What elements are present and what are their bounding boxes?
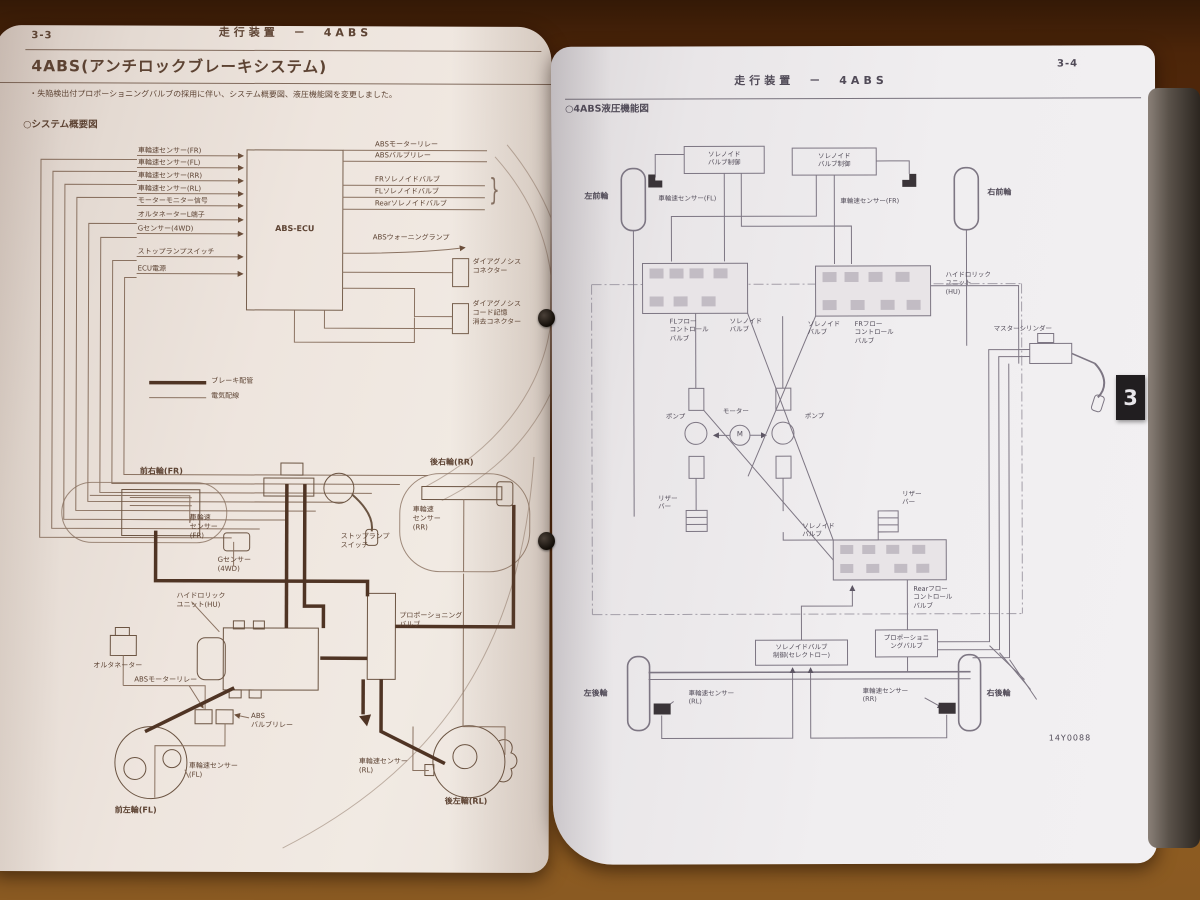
input-g-sensor: Gセンサー(4WD): [138, 225, 194, 234]
input-stop-lamp: ストップランプスイッチ: [138, 248, 215, 257]
pump-right-label: ポンプ: [805, 412, 824, 420]
sol-valve-rear-label: ソレノイド バルブ: [802, 522, 835, 539]
rr-wheel-label: 後右輪(RR): [430, 458, 474, 469]
sol-valve-right-label: ソレノイド バルブ: [808, 320, 841, 337]
input-motor-monitor: モーターモニター信号: [138, 197, 208, 206]
diag-connector-label: ダイアグノシス コネクター: [473, 258, 522, 276]
g-sensor-label: Gセンサー (4WD): [218, 556, 252, 574]
fr-flow-valve-label: FRフロー コントロール バルブ: [855, 320, 894, 345]
fr-wheel-label: 前右輪(FR): [140, 467, 183, 478]
rr-rear-wheel-label: 右後輪: [987, 689, 1011, 699]
diag-erase-connector-label: ダイアグノシス コード記憶 消去コネクター: [472, 300, 521, 327]
input-sensor-fl: 車輪速センサー(FL): [138, 159, 200, 168]
output-motor-relay: ABSモーターリレー: [375, 140, 438, 149]
pump-left-label: ポンプ: [666, 412, 685, 420]
motor-m-symbol: M: [733, 430, 747, 439]
prop-valve-label: プロポーショニング バルブ: [399, 611, 462, 629]
rl-wheel-label: 後左輪(RL): [445, 797, 488, 808]
input-ecu-power: ECU電源: [138, 265, 166, 274]
output-valve-relay: ABSバルブリレー: [375, 151, 431, 160]
hyd-sensor-rr-label: 車輪速センサー (RR): [863, 687, 909, 704]
rf-wheel-label: 右前輪: [987, 188, 1011, 198]
sol-ctrl-right-label: ソレノイド バルブ制御: [792, 152, 876, 169]
right-page: 3-4 走行装置 － 4ABS ○4ABS液圧機能図: [551, 45, 1157, 865]
hyd-sensor-rl-label: 車輪速センサー (RL): [689, 689, 735, 706]
rear-flow-valve-label: Rearフロー コントロール バルブ: [913, 585, 952, 610]
input-alternator-l: オルタネーターL端子: [138, 211, 205, 220]
sol-ctrl-rear-label: ソレノイドバルブ 制御(セレクトロー): [755, 643, 847, 660]
solenoid-group-brace: }: [489, 171, 500, 210]
motor-label: モーター: [723, 407, 749, 416]
legend-electric-label: 電気配線: [211, 392, 239, 401]
ecu-box-label: ABS-ECU: [247, 224, 343, 235]
hyd-sensor-fr-label: 車輪速センサー(FR): [840, 197, 899, 206]
reservoir-right-label: リザー バー: [902, 490, 922, 507]
sensor-fl-label: 車輪速センサー (FL): [189, 762, 238, 780]
system-diagram: [0, 25, 551, 873]
stop-lamp-label: ストップランプ スイッチ: [341, 532, 390, 550]
photo-open-manual: 3-3 走行装置 － 4ABS 4ABS(アンチロックブレーキシステム) ・失陥…: [0, 0, 1200, 900]
sensor-rr-label: 車輪速 センサー (RR): [413, 505, 441, 532]
input-sensor-fr: 車輪速センサー(FR): [138, 147, 201, 156]
output-rear-solenoid: Rearソレノイドバルブ: [375, 199, 447, 208]
hyd-hu-label: ハイドロリック ユニット (HU): [946, 271, 991, 296]
page-stack-edge: [1148, 88, 1200, 848]
lr-wheel-label: 左後輪: [584, 689, 608, 699]
sol-valve-left-label: ソレノイド バルブ: [730, 317, 763, 334]
master-cylinder-label: マスターシリンダー: [994, 324, 1052, 333]
chapter-tab-3: 3: [1116, 375, 1145, 420]
abs-valve-relay-label: ABS バルブリレー: [251, 712, 293, 730]
input-sensor-rl: 車輪速センサー(RL): [138, 185, 201, 194]
hydraulic-unit-label: ハイドロリック ユニット(HU): [176, 592, 225, 610]
figure-number: 14Y0088: [1049, 733, 1091, 744]
left-page: 3-3 走行装置 － 4ABS 4ABS(アンチロックブレーキシステム) ・失陥…: [0, 25, 551, 873]
fl-wheel-label: 前左輪(FL): [115, 805, 157, 816]
sol-ctrl-left-label: ソレノイド バルブ制御: [684, 150, 764, 167]
legend-brake-label: ブレーキ配管: [211, 377, 253, 386]
reservoir-left-label: リザー バー: [658, 494, 678, 511]
binder-hole-top: [538, 309, 555, 327]
input-sensor-rr: 車輪速センサー(RR): [138, 172, 202, 181]
binder-hole-bottom: [538, 532, 555, 550]
hyd-sensor-fl-label: 車輪速センサー(FL): [658, 194, 716, 203]
output-fr-solenoid: FRソレノイドバルブ: [375, 175, 440, 184]
fl-flow-valve-label: FLフロー コントロール バルブ: [670, 317, 709, 342]
abs-motor-relay-label: ABSモーターリレー: [134, 676, 197, 685]
hyd-prop-valve-label: プロポーショニ ングバルブ: [875, 634, 937, 651]
warning-lamp-label: ABSウォーニングランプ: [373, 233, 450, 242]
sensor-fr-label: 車輪速 センサー (FR): [190, 514, 218, 541]
chapter-tab-number: 3: [1123, 386, 1138, 410]
lf-wheel-label: 左前輪: [584, 192, 608, 202]
alternator-label: オルタネーター: [93, 661, 142, 670]
output-fl-solenoid: FLソレノイドバルブ: [375, 187, 439, 196]
sensor-rl-label: 車輪速センサー (RL): [359, 757, 408, 775]
